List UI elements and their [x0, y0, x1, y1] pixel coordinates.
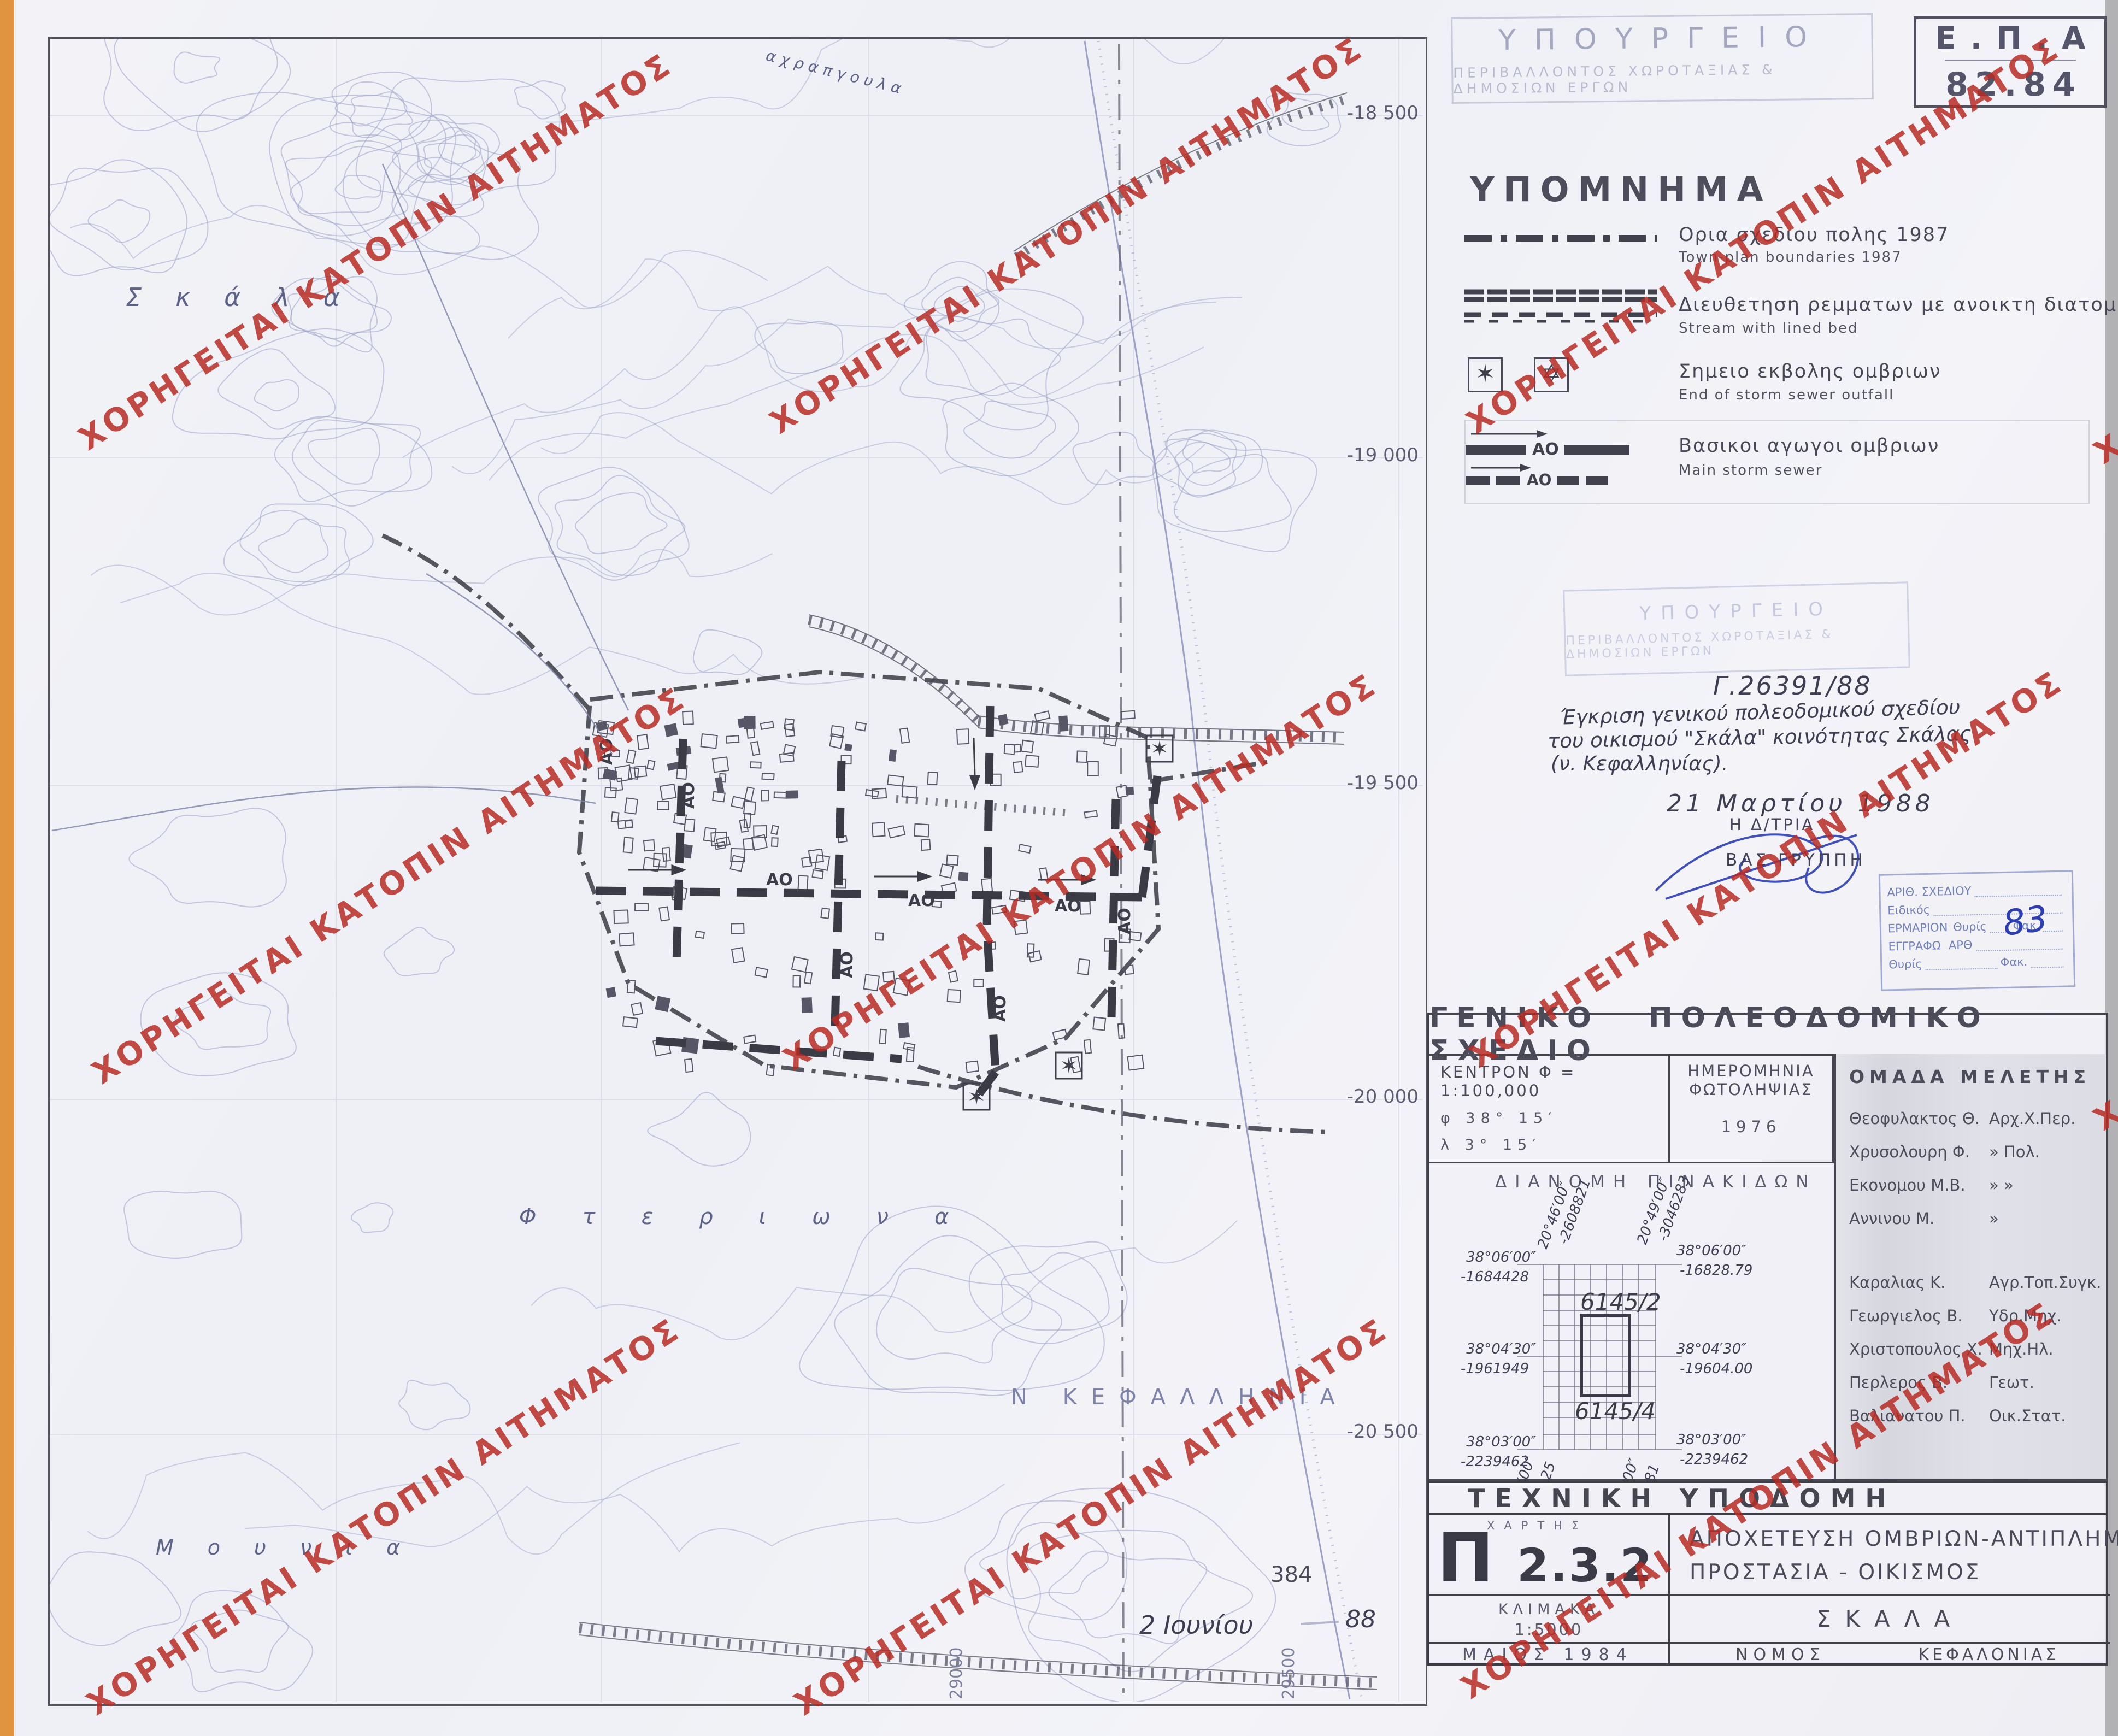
ministry-stamp-line2: ΠΕΡΙΒΑΛΛΟΝΤΟΣ ΧΩΡΟΤΑΞΙΑΣ & ΔΗΜΟΣΙΩΝ ΕΡΓΩ…	[1453, 61, 1872, 97]
svg-text:-18 500: -18 500	[1347, 102, 1419, 124]
boundary-dashdot-symbol	[1460, 223, 1668, 250]
svg-text:6145/4: 6145/4	[1575, 1398, 1656, 1425]
map-label: ΧΑΡΤΗΣ	[1487, 1519, 1588, 1532]
team-row: Χρυσολουρη Φ.» Πολ.	[1849, 1143, 2093, 1161]
team-title: ΟΜΑΔΑ ΜΕΛΕΤΗΣ	[1849, 1066, 2093, 1087]
svg-text:38°04′30″: 38°04′30″	[1466, 1341, 1536, 1357]
nomos-cell: ΝΟΜΟΣ ΚΕΦΑΛΟΝΙΑΣ	[1670, 1644, 2110, 1666]
map-series-glyph: Π	[1437, 1525, 1494, 1592]
svg-text:ΑΟ: ΑΟ	[991, 995, 1010, 1022]
svg-text:-16828.79: -16828.79	[1680, 1262, 1752, 1279]
svg-text:6145/2: 6145/2	[1580, 1288, 1661, 1315]
svg-text:-20 500: -20 500	[1347, 1421, 1419, 1443]
svg-text:✶: ✶	[1150, 737, 1169, 762]
sheet-index-diagram: 38°06′00″ -1684428 38°06′00″ -16828.79 3…	[1429, 1163, 1834, 1479]
dashdot-line-vertical	[1119, 44, 1123, 1694]
svg-text:20°49′00″: 20°49′00″	[1603, 1456, 1643, 1479]
svg-text:38°03′00″: 38°03′00″	[1676, 1432, 1746, 1448]
legend-title: ΥΠΟΜΝΗΜΑ	[1470, 169, 1772, 209]
svg-text:-1961949: -1961949	[1461, 1361, 1529, 1377]
svg-text:-1684428: -1684428	[1461, 1269, 1529, 1285]
svg-text:29000: 29000	[947, 1647, 966, 1699]
sheet-center-cell: ΚΕΝΤΡΟΝ Φ = 1:100,000 φ 38° 15′ λ 3° 15′	[1429, 1054, 1670, 1163]
sheet-note: 384	[1270, 1562, 1312, 1587]
grid-labels-right: -18 500 -19 000 -19 500 -20 000 -20 500	[1347, 102, 1419, 1443]
hand-year: 88	[1345, 1605, 1376, 1633]
team-row: Αννινου Μ.»	[1849, 1209, 2093, 1228]
svg-text:✶: ✶	[1060, 1054, 1078, 1079]
svg-text:-19 000: -19 000	[1347, 444, 1419, 466]
ministry-stamp: ΥΠΟΥΡΓΕΙΟ ΠΕΡΙΒΑΛΛΟΝΤΟΣ ΧΩΡΟΤΑΞΙΑΣ & ΔΗΜ…	[1451, 13, 1874, 104]
epa-label: Ε.Π.Α	[1921, 21, 2099, 56]
svg-text:ΑΟ: ΑΟ	[766, 870, 793, 890]
svg-text:-19604.00: -19604.00	[1680, 1361, 1752, 1377]
svg-text:ΑΟ: ΑΟ	[679, 782, 698, 809]
svg-text:38°06′00″: 38°06′00″	[1466, 1249, 1536, 1266]
faint-ministry-stamp: ΥΠΟΥΡΓΕΙΟ ΠΕΡΙΒΑΛΛΟΝΤΟΣ ΧΩΡΟΤΑΞΙΑΣ & ΔΗΜ…	[1563, 581, 1910, 676]
town-plan-boundary	[383, 535, 1328, 1132]
svg-text:29500: 29500	[1279, 1647, 1298, 1699]
place-cell: ΣΚΑΛΑ	[1670, 1596, 2110, 1644]
svg-text:38°06′00″: 38°06′00″	[1676, 1243, 1746, 1259]
photo-date-cell: ΗΜΕΡΟΜΗΝΙΑ ΦΩΤΟΛΗΨΙΑΣ 1976	[1670, 1054, 1834, 1163]
svg-text:ΑΟ: ΑΟ	[1532, 440, 1559, 459]
svg-text:38°04′30″: 38°04′30″	[1676, 1341, 1746, 1357]
svg-text:ΑΟ: ΑΟ	[908, 891, 935, 910]
approval-ref: Γ.26391/88	[1713, 671, 1872, 701]
title-block: ΓΕΝΙΚΟ ΠΟΛΕΟΔΟΜΙΚΟ ΣΧΕΔΙΟ ΚΕΝΤΡΟΝ Φ = 1:…	[1427, 1013, 2108, 1481]
team-row: Καραλιας Κ.Αγρ.Τοπ.Συγκ.	[1849, 1273, 2093, 1292]
svg-text:Φτεριωνα: Φτεριωνα	[519, 1204, 995, 1229]
svg-text:ΑΟ: ΑΟ	[1527, 471, 1551, 489]
hand-date: 2 Ιουνίου	[1139, 1610, 1253, 1640]
svg-text:ΑΟ: ΑΟ	[1115, 908, 1134, 934]
filing-stamp: ΑΡΙΘ. ΣΧΕΔΙΟΥ Ειδικός ΕΡΜΑΡΙΟΝΘυρίςΦακ. …	[1879, 870, 2075, 991]
svg-text:αχραπγουλα: αχραπγουλα	[764, 46, 908, 99]
approval-line3: (ν. Κεφαλληνίας).	[1551, 752, 1728, 775]
svg-text:-2239462: -2239462	[1680, 1451, 1748, 1468]
ministry-stamp-line1: ΥΠΟΥΡΓΕΙΟ	[1498, 21, 1826, 57]
legend-item-stream: Διευθετηση ρεμματων με ανοικτη διατομη S…	[1460, 284, 2116, 350]
svg-text:✶: ✶	[967, 1085, 986, 1110]
svg-text:-19 500: -19 500	[1347, 772, 1419, 794]
legend-item-sewer: ΑΟ ΑΟ Βασικοι αγωγοι ομβριων Main storm …	[1460, 426, 2116, 497]
team-row: Εκονομου Μ.Β.» »	[1849, 1176, 2093, 1194]
svg-text:ΑΟ: ΑΟ	[838, 951, 857, 978]
storm-sewer-symbol: ΑΟ ΑΟ	[1460, 426, 1668, 497]
sheet-index-cell: ΔΙΑΝΟΜΗ ΠΙΝΑΚΙΔΩΝ	[1429, 1163, 1834, 1479]
svg-text:38°03′00″: 38°03′00″	[1466, 1434, 1536, 1450]
team-row: Θεοφυλακτος Θ.Αρχ.Χ.Περ.	[1849, 1109, 2093, 1128]
scanned-map-sheet: ΑΟ ΑΟ ΑΟ ΑΟ ΑΟ ΑΟ ΑΟ ΑΟ ✶ ✶ ✶	[0, 0, 2118, 1736]
filing-stamp-folder-number: 83	[2001, 898, 2050, 944]
margin-notes: 384 2 Ιουνίου 88	[1139, 1562, 1376, 1640]
svg-text:-20 000: -20 000	[1347, 1086, 1419, 1108]
